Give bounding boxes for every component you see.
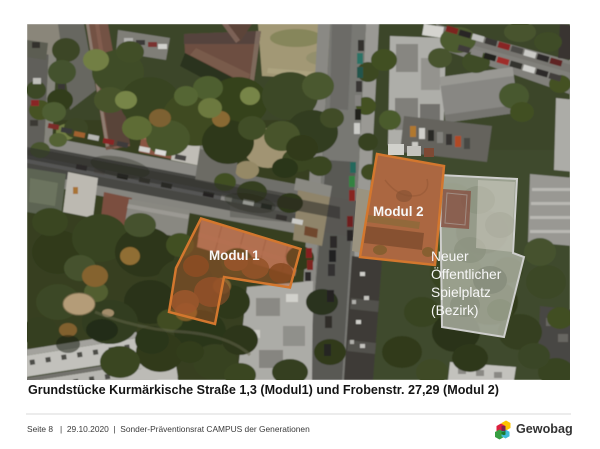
svg-text:Modul 1: Modul 1 <box>209 248 260 263</box>
svg-text:Neuer: Neuer <box>431 249 469 264</box>
svg-text:Modul 2: Modul 2 <box>373 204 424 219</box>
svg-text:(Bezirk): (Bezirk) <box>431 303 479 318</box>
svg-text:Spielplatz: Spielplatz <box>431 285 491 300</box>
svg-text:Öffentlicher: Öffentlicher <box>431 265 502 282</box>
svg-text:Gewobag: Gewobag <box>516 422 573 436</box>
